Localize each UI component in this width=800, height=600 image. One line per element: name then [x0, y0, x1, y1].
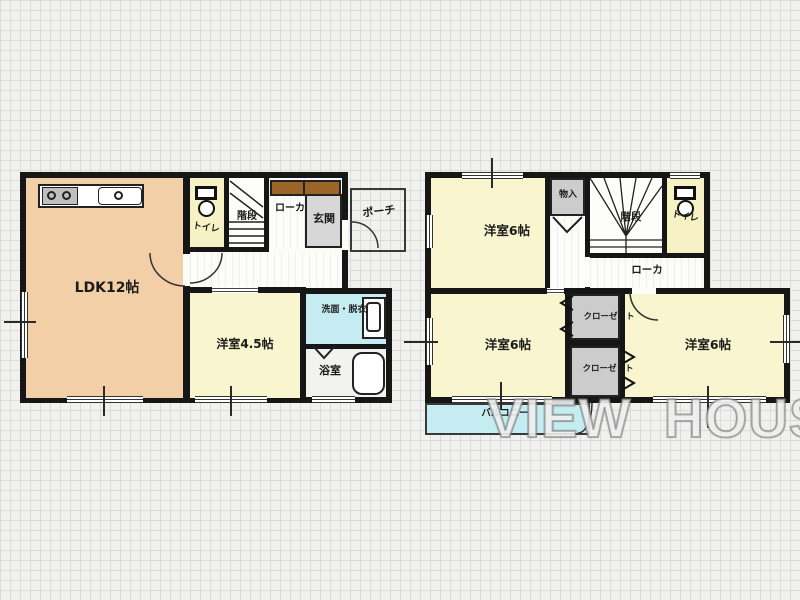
hallway-label: ローカ — [623, 265, 671, 277]
closet-door-icon — [561, 322, 573, 336]
dimension-tick — [103, 386, 105, 416]
entrance-label: 玄関 — [307, 213, 341, 225]
stove-burner-icon — [62, 191, 71, 200]
floorplan-canvas: LDK12帖 トイレ 階段 ローカ 玄関 ポーチ 洋室4.5帖 洗面・脱衣 浴室 — [0, 0, 800, 600]
dimension-tick — [230, 386, 232, 416]
window — [783, 315, 790, 363]
dimension-tick — [770, 341, 800, 343]
storage-label: 物入 — [551, 191, 585, 201]
stairs-label: 階段 — [228, 211, 266, 222]
closet-door-icon — [622, 350, 634, 364]
bathroom-label: 浴室 — [308, 365, 352, 377]
door-arc — [190, 253, 222, 283]
sliding-door — [212, 287, 258, 293]
shoe-cabinet-divider — [303, 181, 305, 194]
window — [312, 396, 355, 403]
bedroom-nw-label: 洋室6帖 — [447, 224, 567, 238]
window — [670, 172, 700, 179]
bedroom-se-label: 洋室6帖 — [648, 338, 768, 352]
entrance-door-gap — [342, 220, 348, 250]
washroom-label: 洗面・脱衣 — [304, 306, 384, 316]
stove-burner-icon — [47, 191, 56, 200]
watermark-text: VIEW HOUSE — [487, 386, 800, 450]
dimension-tick — [4, 321, 36, 323]
bath-folding-door-icon — [313, 346, 335, 358]
dimension-tick — [491, 158, 493, 188]
window — [21, 292, 28, 358]
bathtub-icon — [352, 352, 385, 395]
sliding-door — [547, 288, 564, 294]
window — [426, 215, 433, 248]
closet-door-icon — [561, 296, 573, 310]
closet-a-label: クローゼット — [569, 313, 649, 322]
closet-b-label: クローゼット — [568, 365, 648, 374]
sink-drain-icon — [114, 191, 123, 200]
toilet-icon — [195, 186, 217, 200]
stairs-label: 階段 — [611, 212, 651, 224]
ldk-label: LDK12帖 — [47, 281, 167, 296]
bedroom-sw-label: 洋室6帖 — [448, 338, 568, 352]
toilet-icon — [674, 186, 696, 200]
bedroom-label: 洋室4.5帖 — [190, 338, 300, 351]
door-arc — [352, 222, 378, 248]
toilet-bowl-icon — [198, 200, 215, 217]
window — [67, 396, 143, 403]
dimension-tick — [404, 341, 438, 343]
